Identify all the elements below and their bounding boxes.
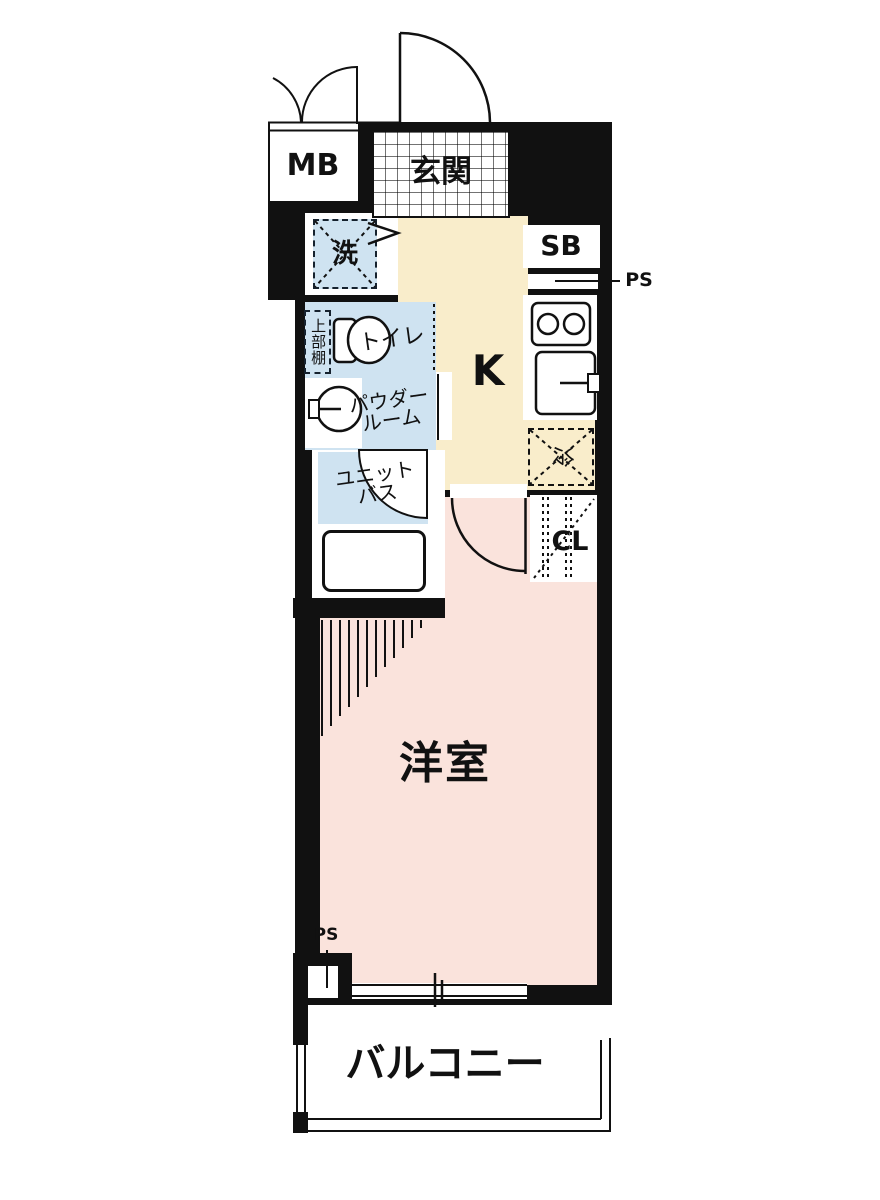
wall-left-stub <box>268 200 310 300</box>
upper-shelf-label: 上部棚 <box>307 313 328 371</box>
pipe-space-top-label: PS <box>622 270 656 292</box>
balcony-wall-stub-bottom <box>293 1112 308 1133</box>
room-door-opening <box>450 484 527 498</box>
pipe-space-slot <box>528 274 598 289</box>
wall-below-bath <box>293 598 445 618</box>
pipe-space-bottom-label: PS <box>310 926 342 946</box>
unit-bath-line2: バス <box>356 481 398 507</box>
powder-room-line2: ルーム <box>361 406 423 434</box>
entrance-label: 玄関 <box>381 155 501 191</box>
balcony-label: バルコニー <box>335 1040 555 1088</box>
meter-box-label: MB <box>278 148 348 184</box>
western-room-label: 洋室 <box>395 740 495 788</box>
bathtub <box>322 530 426 592</box>
closet-label: CL <box>548 526 592 558</box>
kitchen-label: K <box>466 348 510 394</box>
shoe-box-label: SB <box>531 229 591 263</box>
pipe-space-bottom-box <box>308 966 338 998</box>
balcony-wall-stub-top <box>293 1005 308 1045</box>
balcony-window <box>350 983 527 999</box>
floor-plan: MB 玄関 洗 SB PS 上部棚 トイレ パウダー ルーム K ユニット バス… <box>0 0 880 1200</box>
refrigerator-label: 冷 <box>548 444 574 470</box>
kitchen-counter <box>523 295 597 420</box>
powder-door-opening <box>436 372 452 440</box>
washer-label: 洗 <box>330 239 360 269</box>
